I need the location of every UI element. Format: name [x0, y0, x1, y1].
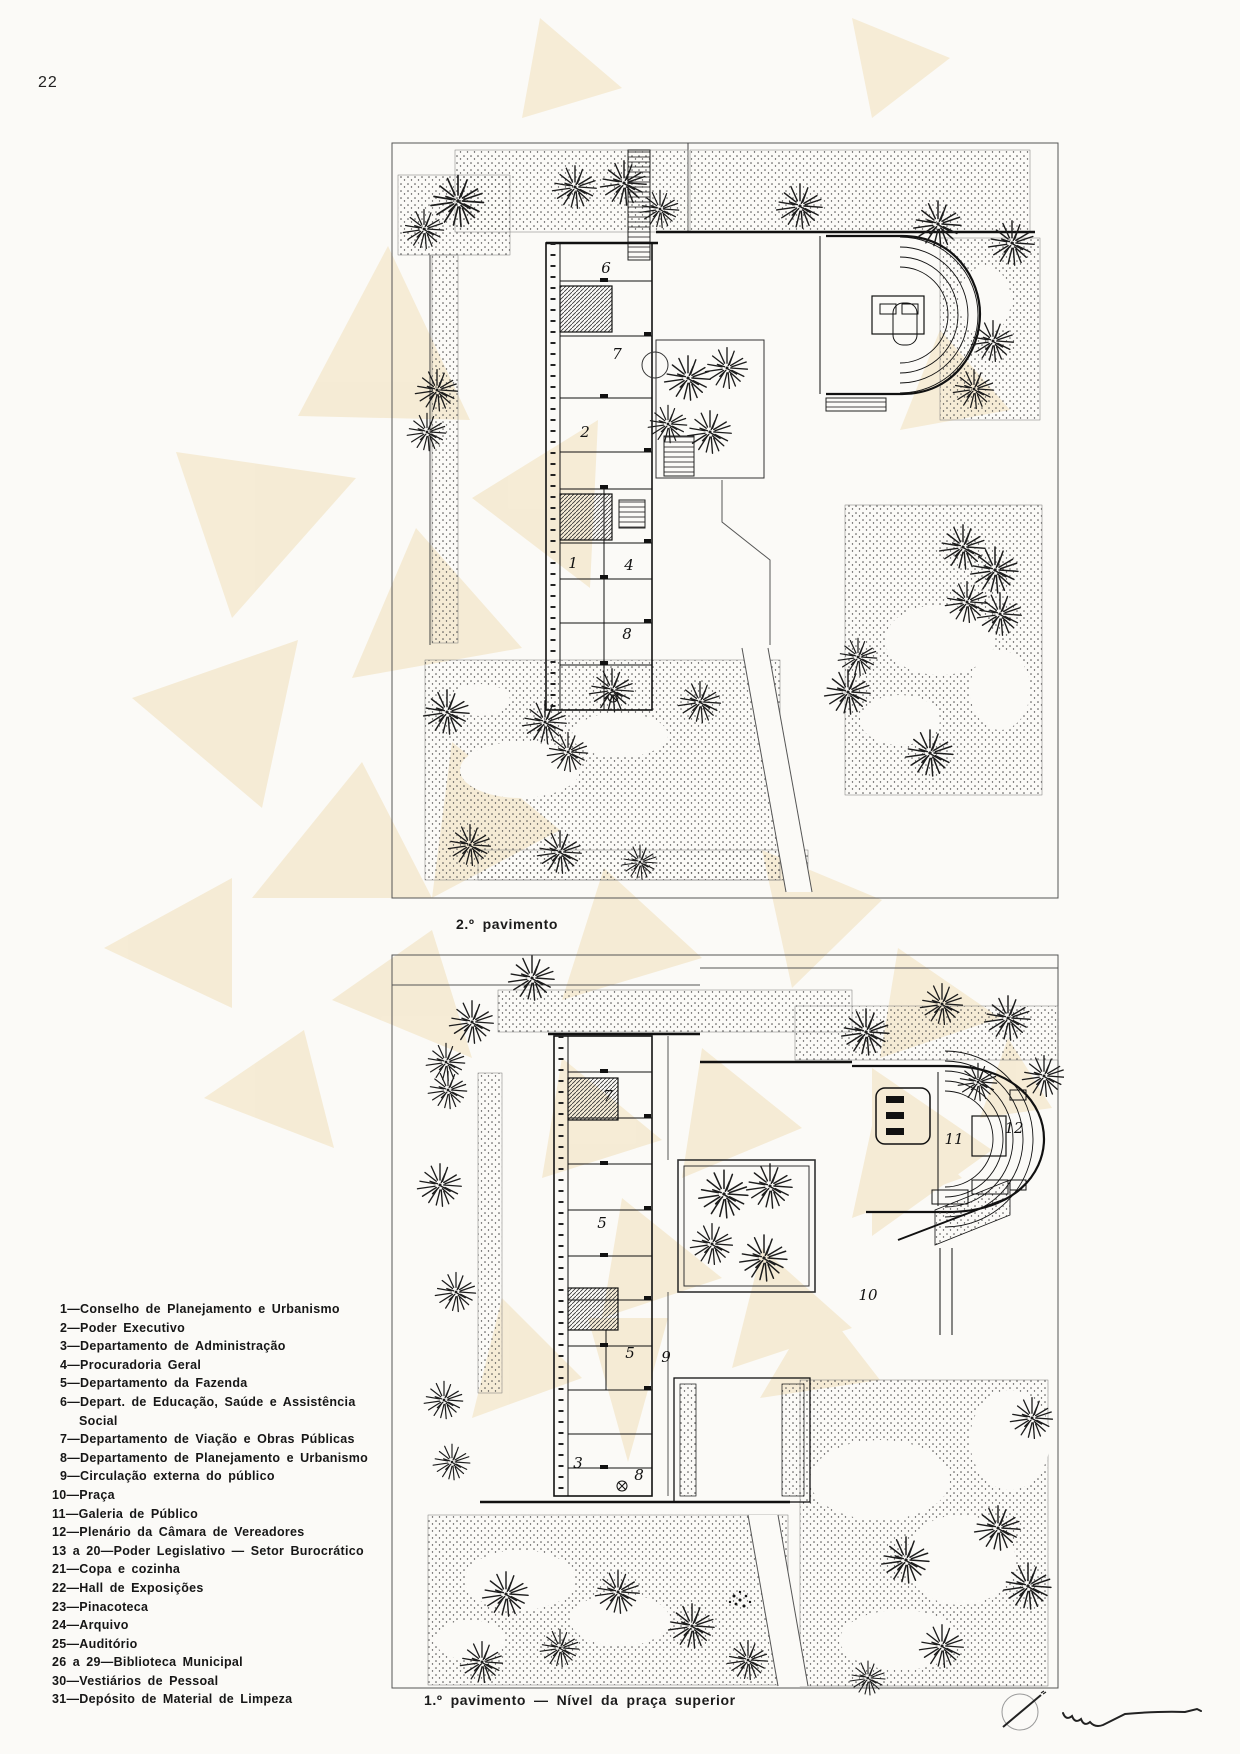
floor-plan-1st-pavement: 7 5 5 9 3 8 11 12 10: [388, 948, 1064, 1696]
plaza-edges: [722, 480, 770, 645]
office-slab: [546, 243, 652, 710]
legend-item: 3—Departamento de Administração: [52, 1337, 404, 1356]
legend-item: 25—Auditório: [52, 1635, 404, 1654]
room-label-10: 10: [858, 1286, 878, 1304]
lower-room: [674, 1378, 810, 1502]
room-label-5a: 5: [597, 1214, 607, 1232]
room-label-4: 4: [623, 556, 634, 574]
room-legend: 1—Conselho de Planejamento e Urbanismo 2…: [52, 1300, 404, 1709]
legend-item: 30—Vestiários de Pessoal: [52, 1672, 404, 1691]
office-slab: [554, 1036, 652, 1496]
legend-item: 13 a 20—Poder Legislativo — Setor Burocr…: [52, 1542, 404, 1561]
legend-item: 26 a 29—Biblioteca Municipal: [52, 1653, 404, 1672]
wc-core: [560, 286, 612, 332]
legend-item-continuation: Social: [52, 1412, 404, 1431]
wc-core: [568, 1288, 618, 1330]
legend-item: 9—Circulação externa do público: [52, 1467, 404, 1486]
scanned-book-page: 22: [0, 0, 1240, 1754]
room-label-1: 1: [568, 554, 578, 572]
fountain: [642, 352, 668, 378]
room-label-5b: 5: [625, 1344, 635, 1362]
room-label-7: 7: [612, 345, 622, 363]
room-label-9: 9: [661, 1348, 671, 1366]
legend-item: 23—Pinacoteca: [52, 1598, 404, 1617]
legend-item: 31—Depósito de Material de Limpeza: [52, 1690, 404, 1709]
courtyard: [678, 1160, 815, 1292]
legend-item: 21—Copa e cozinha: [52, 1560, 404, 1579]
plan1-caption: 2.º pavimento: [456, 916, 558, 932]
access-ramp: [898, 1180, 1010, 1335]
legend-item: 7—Departamento de Viação e Obras Pública…: [52, 1430, 404, 1449]
room-label-7: 7: [603, 1087, 613, 1105]
plan2-caption: 1.º pavimento — Nível da praça superior: [424, 1692, 736, 1708]
legend-item: 10—Praça: [52, 1486, 404, 1505]
room-label-12: 12: [1004, 1119, 1023, 1137]
rostrum: [872, 296, 924, 334]
room-label-8: 8: [634, 1466, 644, 1484]
legend-item: 22—Hall de Exposições: [52, 1579, 404, 1598]
legend-item: 12—Plenário da Câmara de Vereadores: [52, 1523, 404, 1542]
legend-item: 4—Procuradoria Geral: [52, 1356, 404, 1375]
door-jambs: [600, 1069, 651, 1469]
legend-item: 6—Depart. de Educação, Saúde e Assistênc…: [52, 1393, 404, 1412]
legend-item: 5—Departamento da Fazenda: [52, 1374, 404, 1393]
wc-core: [560, 494, 612, 540]
floor-plan-2nd-pavement: 6 7 2 1 4 8: [388, 140, 1064, 902]
legend-item: 24—Arquivo: [52, 1616, 404, 1635]
legend-item: 11—Galeria de Público: [52, 1505, 404, 1524]
room-label-8: 8: [622, 625, 632, 643]
legend-item: 2—Poder Executivo: [52, 1319, 404, 1338]
courtyard: [642, 340, 764, 478]
legend-item: 1—Conselho de Planejamento e Urbanismo: [52, 1300, 404, 1319]
legend-item: 8—Departamento de Planejamento e Urbanis…: [52, 1449, 404, 1468]
room-label-6: 6: [601, 259, 611, 277]
room-label-3: 3: [573, 1454, 583, 1472]
architect-signature: [975, 1678, 1225, 1748]
room-label-11: 11: [944, 1130, 963, 1148]
room-label-2: 2: [579, 423, 590, 441]
planter: [893, 303, 917, 345]
